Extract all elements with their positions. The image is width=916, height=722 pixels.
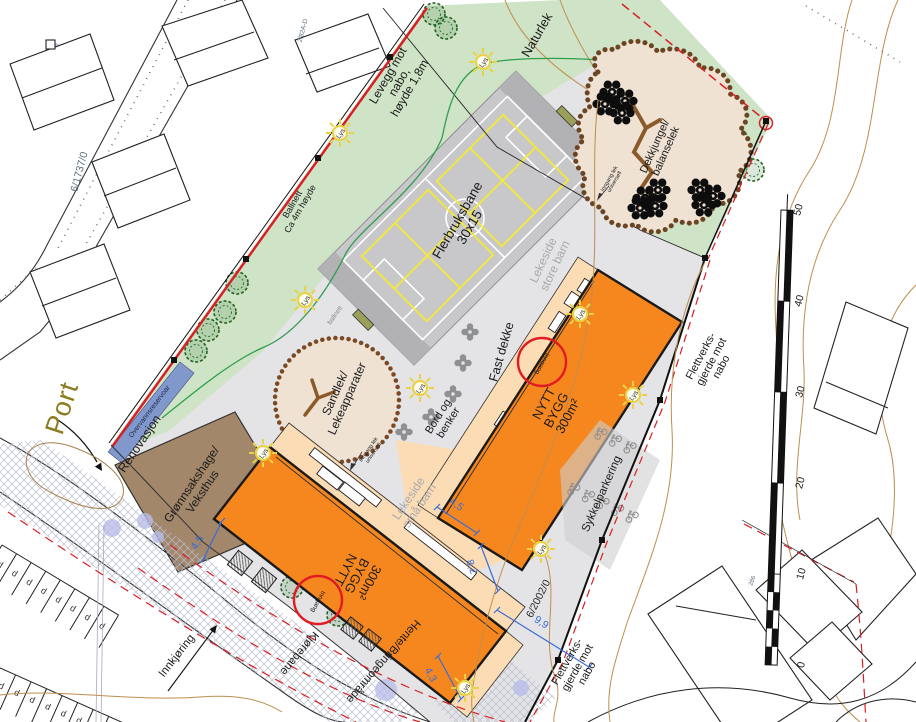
svg-text:p: p [74, 716, 83, 722]
svg-text:p: p [59, 709, 68, 720]
svg-text:p: p [68, 604, 77, 615]
svg-text:p: p [82, 613, 91, 624]
svg-text:p: p [38, 586, 47, 597]
svg-text:p: p [53, 595, 62, 606]
parking-row-2: p p p p p p [0, 668, 140, 722]
site-plan: p p p p p p p p p p p p p p [0, 0, 916, 722]
site-plan-canvas: p p p p p p p p p p p p p p [0, 0, 916, 722]
svg-text:p: p [9, 569, 18, 580]
svg-text:p: p [0, 681, 5, 692]
svg-text:p: p [43, 702, 52, 713]
svg-text:p: p [28, 695, 37, 706]
svg-text:p: p [0, 560, 4, 571]
svg-text:p: p [24, 578, 33, 589]
svg-text:p: p [97, 621, 106, 632]
